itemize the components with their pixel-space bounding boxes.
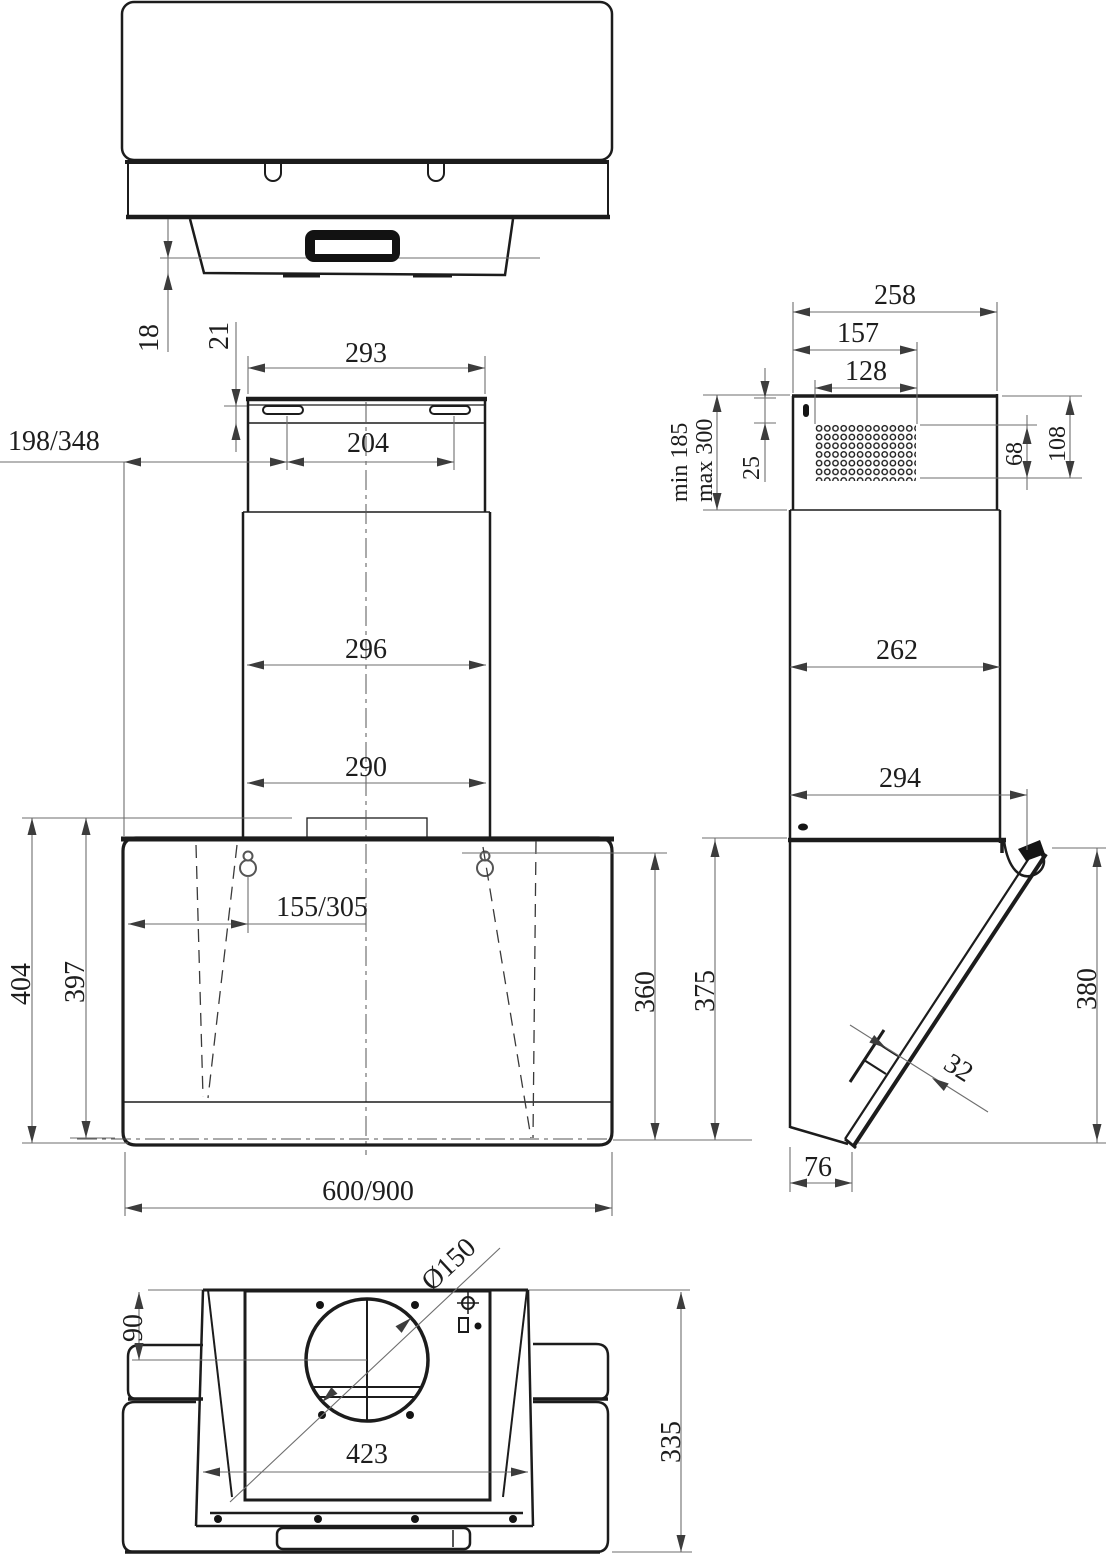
- glass-hinge-clamp: [1018, 840, 1045, 861]
- glass-panel-inner: [845, 846, 1037, 1139]
- glass-end-left-lower: [123, 1402, 196, 1552]
- hood-top-outline: [122, 2, 612, 160]
- keyhole-mount-left: [240, 852, 256, 877]
- glass-end-right-upper: [533, 1344, 608, 1399]
- hood-body-outline: [123, 838, 612, 1145]
- dim-side-min: min 185: [667, 423, 693, 502]
- dim-front-600-900: 600/900: [322, 1176, 414, 1207]
- dim-front-404: 404: [6, 963, 37, 1005]
- dim-top-21: 21: [204, 322, 235, 350]
- side-wall-edge-right: [503, 1290, 527, 1497]
- vent-perforation: [815, 424, 916, 481]
- dim-side-258: 258: [874, 280, 916, 311]
- dim-front-397: 397: [60, 961, 91, 1003]
- chimney-slot-left: [263, 406, 303, 414]
- chimney-slot-right: [430, 406, 470, 414]
- side-view: 258 157 128 min 185 max 300 25: [667, 280, 1106, 1192]
- dim-front-198-348: 198/348: [8, 426, 100, 457]
- dim-side-108: 108: [1045, 426, 1071, 462]
- dim-bottom-335: 335: [656, 1421, 687, 1463]
- glass-panel-outer: [853, 854, 1046, 1147]
- dim-front-290: 290: [345, 752, 387, 783]
- dim-bottom-90: 90: [118, 1314, 149, 1342]
- mount-notch-left: [265, 164, 281, 181]
- dim-side-375: 375: [690, 970, 721, 1012]
- dim-front-360: 360: [630, 971, 661, 1013]
- dim-side-76: 76: [804, 1152, 832, 1183]
- side-screw-dot: [798, 824, 808, 831]
- technical-drawing: 18 21: [0, 0, 1110, 1562]
- bottom-panel-tab: [277, 1528, 470, 1549]
- drawing-sheet: 18 21: [0, 0, 1110, 1562]
- bottom-view: 90 Ø150 423 335: [118, 1232, 692, 1552]
- dim-side-68: 68: [1002, 442, 1028, 466]
- side-wall-edge-left: [208, 1290, 232, 1497]
- dim-side-294: 294: [879, 763, 921, 794]
- dim-side-25: 25: [739, 456, 765, 480]
- front-view: 293 198/348 204 296 290 155/305: [0, 338, 752, 1216]
- dim-side-380: 380: [1072, 968, 1103, 1010]
- screw-symbol: [457, 1292, 482, 1332]
- dim-bottom-423: 423: [346, 1439, 388, 1470]
- dim-front-155-305: 155/305: [276, 892, 368, 923]
- dim-front-296: 296: [345, 634, 387, 665]
- dim-side-max: max 300: [692, 419, 718, 502]
- chimney-screw-slot: [803, 404, 809, 417]
- control-display-window: [315, 240, 392, 254]
- dim-side-262: 262: [876, 635, 918, 666]
- dim-front-204: 204: [347, 428, 389, 459]
- top-view: 18 21: [122, 2, 612, 452]
- dim-side-128: 128: [845, 356, 887, 387]
- dim-bottom-dia150: Ø150: [416, 1232, 483, 1297]
- mount-notch-right: [428, 164, 444, 181]
- dim-side-157: 157: [837, 318, 879, 349]
- dim-top-18: 18: [134, 324, 165, 352]
- dim-front-293: 293: [345, 338, 387, 369]
- chimney-bracket: [307, 818, 427, 838]
- glass-end-right-lower: [533, 1402, 608, 1552]
- glass-bracket: [850, 1030, 884, 1082]
